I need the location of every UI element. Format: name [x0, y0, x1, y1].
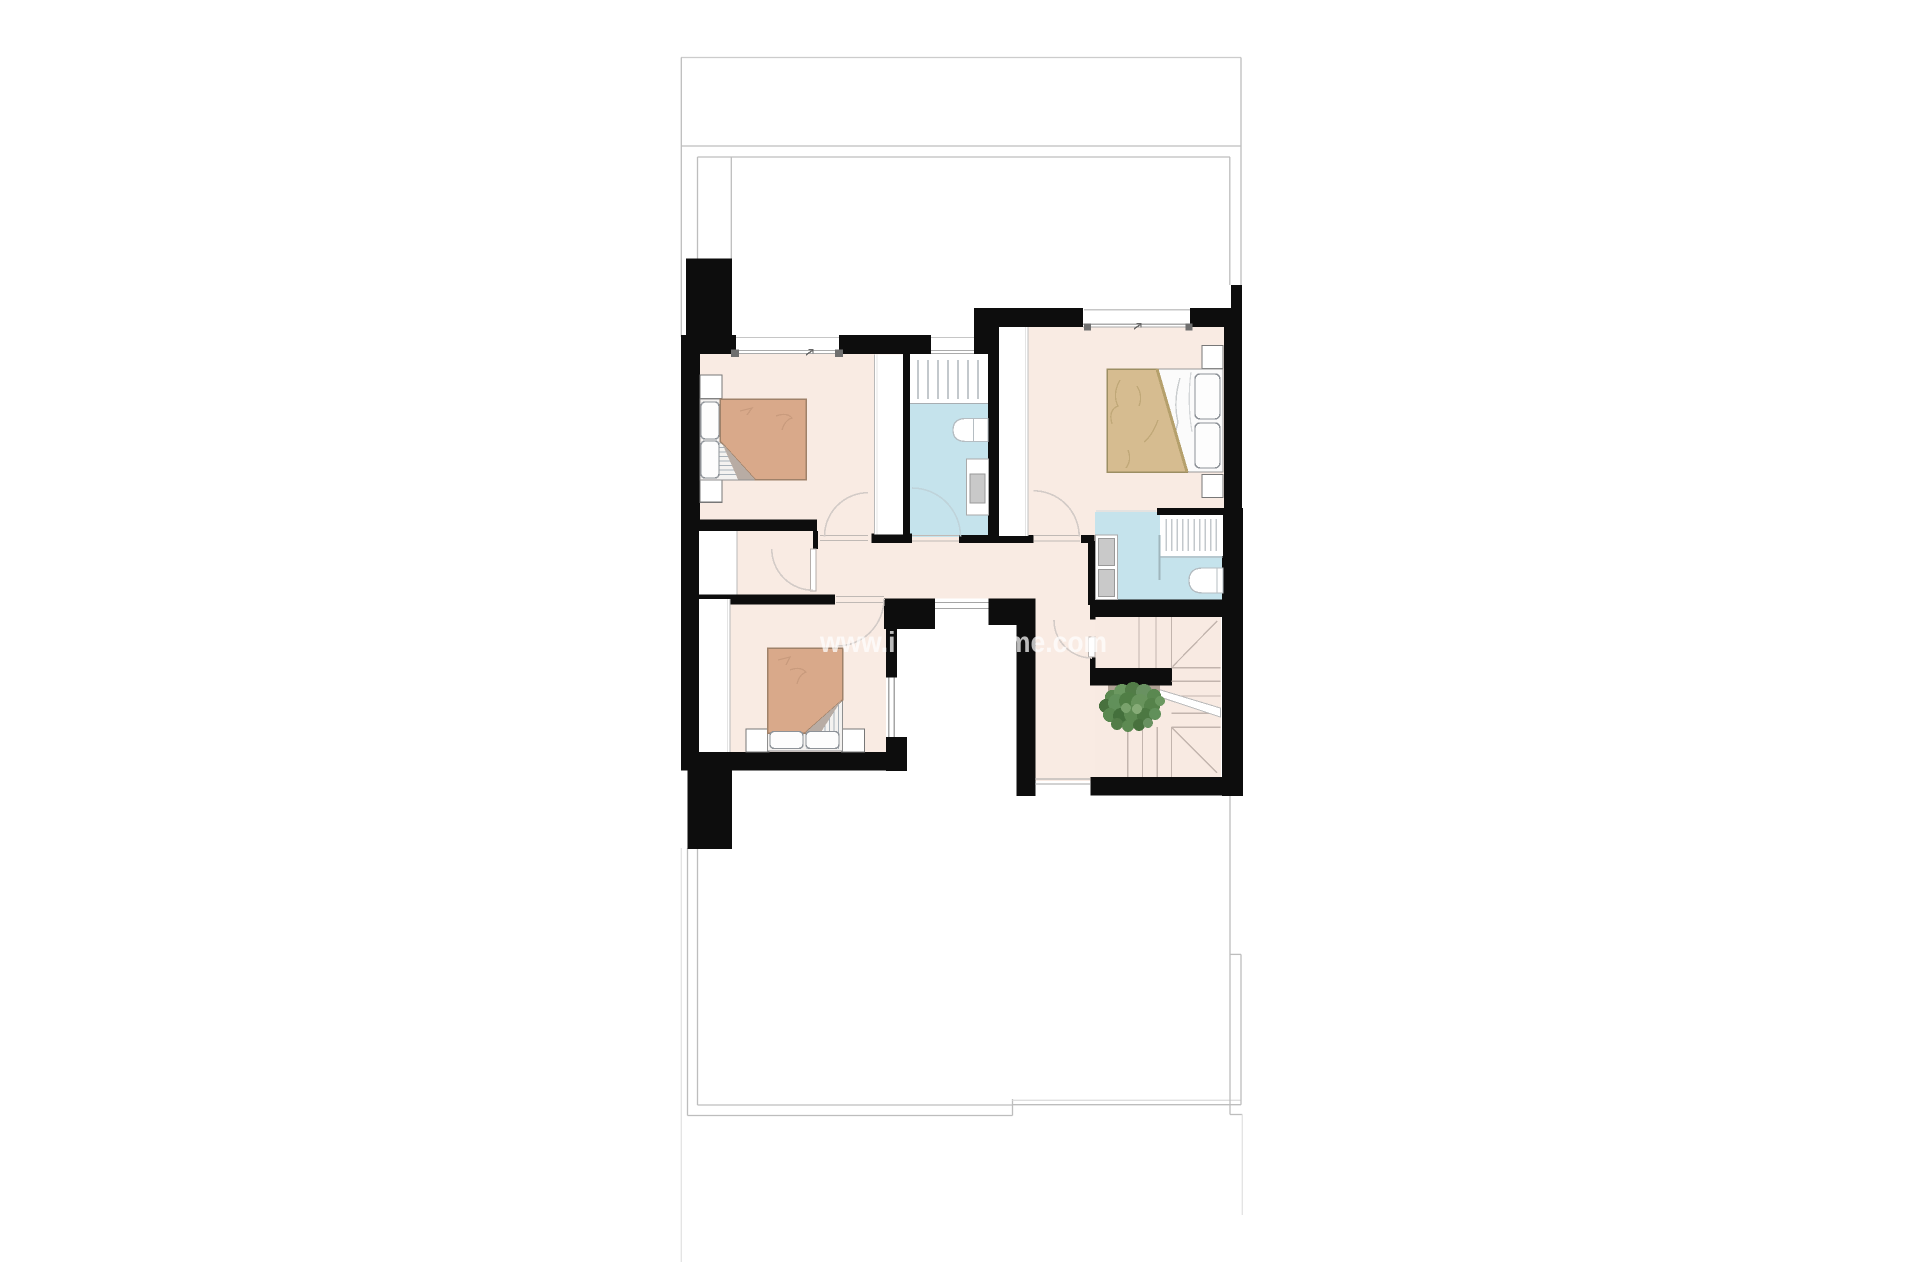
svg-text:www.infinityhome.com: www.infinityhome.com: [819, 627, 1107, 659]
